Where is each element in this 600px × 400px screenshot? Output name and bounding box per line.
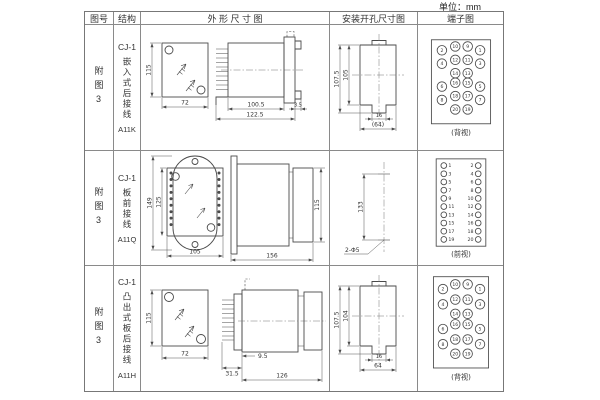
row3-terminal-drawing: 2 10 9 1 4 12 11 3 14 13 6 16 15 5 8 18 xyxy=(419,271,503,387)
row3-terminal-cell: 2 10 9 1 4 12 11 3 14 13 6 16 15 5 8 18 xyxy=(418,266,503,391)
mount-type-label: 凸出式板后接线 xyxy=(121,292,133,366)
terminal-number: 3 xyxy=(478,301,481,307)
terminal-number: 6 xyxy=(441,326,444,332)
row1-outline-cell: 115 72 100.5 xyxy=(141,25,330,151)
terminal-number: 15 xyxy=(464,80,470,86)
header-outline: 外 形 尺 寸 图 xyxy=(141,12,330,25)
dim-label: 100.5 xyxy=(247,101,264,108)
fig-no-label: 附图3 xyxy=(93,66,106,109)
view-caption: (背视) xyxy=(451,128,471,137)
front-view: 149 125 105 xyxy=(147,156,224,258)
terminal-number: 7 xyxy=(478,98,481,104)
dim-label: 133 xyxy=(358,201,365,213)
structure-code-label: A11Q xyxy=(118,235,137,244)
dim-label: 104 xyxy=(343,310,350,322)
terminal-number: 1 xyxy=(448,163,451,169)
side-view: 156 115 xyxy=(231,156,325,262)
terminal-number: 15 xyxy=(448,220,454,226)
header-fig-no: 图号 xyxy=(85,12,114,25)
fig-no-label: 附图3 xyxy=(93,307,106,350)
terminal-number: 9 xyxy=(466,44,469,50)
terminal-number: 3 xyxy=(478,61,481,67)
mount-type-label: 嵌入式后接线 xyxy=(121,57,133,120)
terminal-number: 13 xyxy=(464,311,470,317)
terminal-number: 10 xyxy=(452,44,458,50)
row1-install-cell: 107.5 105 16 (64) xyxy=(330,25,418,151)
terminal-number: 2 xyxy=(440,48,443,54)
terminal-number: 17 xyxy=(464,94,470,100)
install-view: 133 2-Φ5 xyxy=(344,162,390,254)
row3-structure-cell: CJ-1 凸出式板后接线 A11H xyxy=(114,266,141,391)
header-install: 安装开孔尺寸图 xyxy=(330,12,418,25)
terminal-number: 10 xyxy=(452,281,458,287)
row1-terminal-cell: 2 10 9 1 4 12 11 3 14 13 6 16 15 5 8 18 xyxy=(418,25,503,151)
terminal-number: 16 xyxy=(452,80,458,86)
terminal-panel: 2 10 9 1 4 12 11 3 14 13 6 16 15 5 8 18 xyxy=(431,40,490,124)
dim-label: 126 xyxy=(276,372,288,379)
terminal-number: 10 xyxy=(467,196,473,202)
dim-label: 122.5 xyxy=(246,111,263,118)
front-view: 115 72 xyxy=(146,43,209,109)
dim-label: 3.5 xyxy=(294,102,302,108)
header-terminal: 端子图 xyxy=(418,12,503,25)
terminal-number: 20 xyxy=(467,237,473,243)
terminal-number: 11 xyxy=(448,204,454,210)
terminal-number: 17 xyxy=(464,337,470,343)
terminal-number: 3 xyxy=(448,171,451,177)
terminal-number: 9 xyxy=(448,196,451,202)
terminal-number: 14 xyxy=(452,311,458,317)
terminal-number: 8 xyxy=(441,341,444,347)
terminal-number: 19 xyxy=(464,107,470,113)
dim-label: 16 xyxy=(376,113,382,119)
model-label: CJ-1 xyxy=(118,42,136,52)
dim-label: 16 xyxy=(376,354,382,360)
row3-outline-cell: 115 72 9.5 xyxy=(141,266,330,391)
row2-terminal-cell: 1 2 3 4 5 6 7 8 9 10 11 12 13 14 15 16 1 xyxy=(418,151,503,266)
terminal-number: 11 xyxy=(464,57,470,63)
row2-install-drawing: 133 2-Φ5 xyxy=(332,152,415,264)
terminal-number: 20 xyxy=(452,107,458,113)
dim-label: 115 xyxy=(146,64,153,76)
hole-spec-label: 2-Φ5 xyxy=(345,247,360,254)
datasheet-page: 单位：mm 图号 结构 外 形 尺 寸 图 安装开孔尺寸图 端子图 附图3 CJ… xyxy=(0,0,600,400)
terminal-number: 16 xyxy=(452,321,458,327)
terminal-number: 12 xyxy=(467,204,473,210)
dim-label: 72 xyxy=(181,99,189,106)
terminal-number: 13 xyxy=(448,212,454,218)
row2-terminal-drawing: 1 2 3 4 5 6 7 8 9 10 11 12 13 14 15 16 1 xyxy=(419,155,503,262)
model-label: CJ-1 xyxy=(118,277,136,287)
model-label: CJ-1 xyxy=(118,173,136,183)
dim-label: 156 xyxy=(266,253,278,260)
front-view: 115 72 xyxy=(146,290,209,360)
dim-label: 31.5 xyxy=(225,370,239,377)
row1-install-drawing: 107.5 105 16 (64) xyxy=(332,29,415,147)
terminal-number: 17 xyxy=(448,228,454,234)
dim-label: (64) xyxy=(372,121,384,128)
terminal-number: 1 xyxy=(478,48,481,54)
row1-outline-drawing: 115 72 100.5 xyxy=(142,29,328,147)
terminal-number: 14 xyxy=(467,212,473,218)
row3-outline-drawing: 115 72 9.5 xyxy=(142,268,328,390)
row1-fig-no-cell: 附图3 xyxy=(85,25,114,151)
cutout-view: 107.5 104 16 64 xyxy=(334,275,405,372)
terminal-number: 20 xyxy=(452,351,458,357)
terminal-number: 2 xyxy=(470,163,473,169)
terminal-number: 18 xyxy=(452,337,458,343)
row1-terminal-drawing: 2 10 9 1 4 12 11 3 14 13 6 16 15 5 8 18 xyxy=(419,34,503,141)
terminal-number: 18 xyxy=(452,94,458,100)
row3-install-drawing: 107.5 104 16 64 xyxy=(332,268,415,390)
cutout-view: 107.5 105 16 (64) xyxy=(334,34,405,131)
terminal-number: 8 xyxy=(440,98,443,104)
terminal-number: 12 xyxy=(452,297,458,303)
side-view: 9.5 31.5 126 xyxy=(222,279,326,382)
row1-structure-cell: CJ-1 嵌入式后接线 A11K xyxy=(114,25,141,151)
terminal-number: 14 xyxy=(452,71,458,77)
dim-label: 125 xyxy=(156,196,163,208)
terminal-number: 13 xyxy=(464,71,470,77)
terminal-number: 16 xyxy=(467,220,473,226)
spec-table: 图号 结构 外 形 尺 寸 图 安装开孔尺寸图 端子图 附图3 CJ-1 嵌入式… xyxy=(84,11,504,392)
terminal-number: 4 xyxy=(441,301,444,307)
dim-label: 72 xyxy=(181,350,189,357)
dim-label: 115 xyxy=(314,199,321,211)
terminal-number: 19 xyxy=(464,351,470,357)
terminal-number: 19 xyxy=(448,237,454,243)
view-caption: (前视) xyxy=(451,249,471,258)
row3-install-cell: 107.5 104 16 64 xyxy=(330,266,418,391)
terminal-number: 18 xyxy=(467,228,473,234)
dim-label: 115 xyxy=(146,312,153,324)
terminal-number: 5 xyxy=(448,179,451,185)
dim-label: 105 xyxy=(343,69,350,81)
dim-label: 105 xyxy=(189,249,201,256)
structure-code-label: A11H xyxy=(118,371,136,380)
terminal-number: 5 xyxy=(478,326,481,332)
terminal-number: 4 xyxy=(440,61,443,67)
row2-install-cell: 133 2-Φ5 xyxy=(330,151,418,266)
terminal-number: 1 xyxy=(478,286,481,292)
view-caption: (背视) xyxy=(451,372,471,381)
terminal-number: 5 xyxy=(478,84,481,90)
terminal-panel: 2 10 9 1 4 12 11 3 14 13 6 16 15 5 8 18 xyxy=(433,276,488,367)
dim-label: 107.5 xyxy=(334,70,341,87)
row2-outline-cell: 149 125 105 156 xyxy=(141,151,330,266)
terminal-panel: 1 2 3 4 5 6 7 8 9 10 11 12 13 14 15 16 1 xyxy=(436,158,486,245)
terminal-number: 4 xyxy=(470,171,473,177)
dim-label: 64 xyxy=(374,362,382,369)
row2-fig-no-cell: 附图3 xyxy=(85,151,114,266)
terminal-number: 7 xyxy=(478,341,481,347)
row2-outline-drawing: 149 125 105 156 xyxy=(141,152,329,264)
terminal-number: 12 xyxy=(452,57,458,63)
terminal-number: 6 xyxy=(440,84,443,90)
terminal-number: 7 xyxy=(448,187,451,193)
terminal-number: 6 xyxy=(470,179,473,185)
terminal-number: 15 xyxy=(464,321,470,327)
dim-label: 107.5 xyxy=(334,311,341,328)
mount-type-label: 板前接线 xyxy=(121,188,133,230)
terminal-number: 9 xyxy=(466,281,469,287)
structure-code-label: A11K xyxy=(118,125,136,134)
dim-label: 9.5 xyxy=(258,353,268,360)
row3-fig-no-cell: 附图3 xyxy=(85,266,114,391)
terminal-number: 2 xyxy=(441,286,444,292)
header-structure: 结构 xyxy=(114,12,141,25)
side-view: 100.5 122.5 3.5 xyxy=(216,31,307,121)
dim-label: 149 xyxy=(147,197,154,209)
row2-structure-cell: CJ-1 板前接线 A11Q xyxy=(114,151,141,266)
terminal-number: 11 xyxy=(464,297,470,303)
terminal-number: 8 xyxy=(470,187,473,193)
fig-no-label: 附图3 xyxy=(93,187,106,230)
